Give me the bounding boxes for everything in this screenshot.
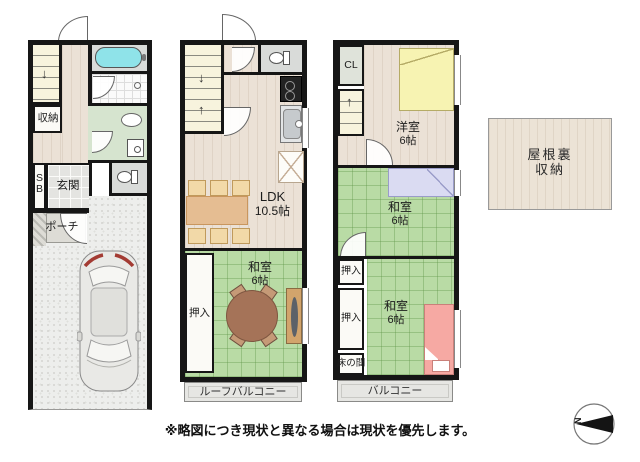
disclaimer-note: ※略図につき現状と異なる場合は現状を優先します。 bbox=[130, 424, 510, 439]
dining-chair-icon bbox=[232, 228, 250, 244]
japanese-room-upper-size: 6帖 bbox=[370, 215, 430, 228]
kitchen-sink-icon bbox=[280, 105, 302, 143]
staircase: ↓ bbox=[33, 45, 62, 105]
door-swing-icon bbox=[58, 16, 88, 42]
shoe-box-label: SB bbox=[34, 173, 45, 195]
attic-line2: 収納 bbox=[488, 163, 612, 178]
japanese-room-upper-label: 和室 6帖 bbox=[370, 201, 430, 227]
western-room-name: 洋室 bbox=[378, 121, 438, 135]
toilet-tank-icon bbox=[131, 170, 138, 184]
toilet-icon bbox=[269, 52, 284, 64]
toilet-icon bbox=[117, 171, 132, 183]
oshiire-label: 押入 bbox=[185, 307, 214, 319]
japanese-room-lower-label: 和室 6帖 bbox=[366, 300, 426, 326]
round-table-icon bbox=[226, 290, 278, 342]
japanese-room-label: 和室 6帖 bbox=[230, 261, 290, 287]
japanese-room-size: 6帖 bbox=[230, 275, 290, 288]
stairs-down-arrow-icon: ↓ bbox=[41, 67, 48, 80]
dining-chair-icon bbox=[210, 228, 228, 244]
room-bath bbox=[92, 45, 147, 71]
stairs-down-arrow-icon: ↓ bbox=[198, 71, 205, 84]
futon-icon bbox=[388, 168, 454, 197]
ldk-label: LDK 10.5帖 bbox=[243, 190, 302, 219]
entrance-label: 玄関 bbox=[47, 180, 89, 193]
japanese-room-lower-name: 和室 bbox=[366, 300, 426, 314]
hallway-lower bbox=[33, 133, 62, 163]
alcove-board-icon bbox=[286, 288, 302, 344]
room-toilet bbox=[112, 163, 147, 193]
refrigerator-space-icon bbox=[278, 151, 304, 183]
oshiire-lower-label: 押入 bbox=[338, 313, 364, 325]
oshiire-upper-label: 押入 bbox=[338, 266, 364, 278]
japanese-room-upper-name: 和室 bbox=[370, 201, 430, 215]
stair-landing bbox=[338, 136, 364, 165]
porch-label: ポーチ bbox=[42, 221, 82, 234]
dining-table-icon bbox=[186, 196, 248, 225]
floor2-plan: ↓ ↑ LDK 10.5帖 bbox=[180, 40, 307, 382]
cl-label: CL bbox=[338, 59, 364, 71]
bathtub-icon bbox=[95, 47, 142, 68]
bed-icon bbox=[399, 48, 454, 111]
bath-faucet-icon bbox=[142, 54, 146, 61]
bed-pink-icon bbox=[424, 304, 454, 375]
window-gap bbox=[454, 310, 461, 368]
balcony-label: バルコニー bbox=[337, 385, 453, 398]
stairs-up-arrow-icon: ↑ bbox=[198, 103, 205, 116]
attic-line1: 屋根裏 bbox=[488, 148, 612, 163]
western-room-size: 6帖 bbox=[378, 135, 438, 148]
japanese-room-lower-size: 6帖 bbox=[366, 314, 426, 327]
stairs-up-arrow-icon: ↑ bbox=[346, 95, 353, 108]
attic-storage-label: 屋根裏 収納 bbox=[488, 148, 612, 178]
ldk-size: 10.5帖 bbox=[243, 205, 302, 219]
dining-chair-icon bbox=[210, 180, 228, 196]
wall bbox=[109, 193, 147, 196]
wall bbox=[109, 163, 112, 193]
tokonoma-label: 床の間 bbox=[330, 359, 372, 370]
room-powder bbox=[88, 106, 147, 160]
stove-icon bbox=[280, 76, 302, 102]
door-swing-icon bbox=[92, 131, 113, 153]
washing-machine-icon bbox=[127, 139, 144, 157]
storage-label: 収納 bbox=[34, 112, 62, 124]
toilet-tank-icon bbox=[283, 51, 290, 65]
dining-chair-icon bbox=[188, 180, 206, 196]
staircase: ↑ bbox=[338, 89, 364, 136]
window-gap bbox=[454, 170, 461, 196]
door-swing-icon bbox=[222, 14, 256, 41]
washbasin-icon bbox=[121, 113, 142, 127]
floor-plan-sheet: ↓ 収納 bbox=[0, 0, 640, 462]
window-gap bbox=[454, 55, 461, 105]
floor3-plan: CL ↑ 洋室 6帖 和室 6帖 押入 押入 床 bbox=[333, 40, 459, 380]
wall bbox=[224, 72, 302, 75]
western-room-label: 洋室 6帖 bbox=[378, 121, 438, 147]
room-toilet bbox=[261, 45, 302, 72]
japanese-room-name: 和室 bbox=[230, 261, 290, 275]
compass-north-label: N bbox=[573, 418, 583, 425]
staircase: ↓ ↑ bbox=[185, 45, 224, 134]
floor1-plan: ↓ 収納 bbox=[28, 40, 152, 410]
shower-icon bbox=[134, 82, 141, 89]
hallway bbox=[62, 45, 88, 163]
ldk-name: LDK bbox=[243, 190, 302, 205]
dining-chair-icon bbox=[188, 228, 206, 244]
window-gap bbox=[302, 288, 309, 344]
compass-icon: N bbox=[570, 400, 618, 448]
roof-balcony-label: ルーフバルコニー bbox=[184, 386, 302, 399]
window-gap bbox=[302, 108, 309, 148]
car-icon bbox=[77, 248, 141, 394]
